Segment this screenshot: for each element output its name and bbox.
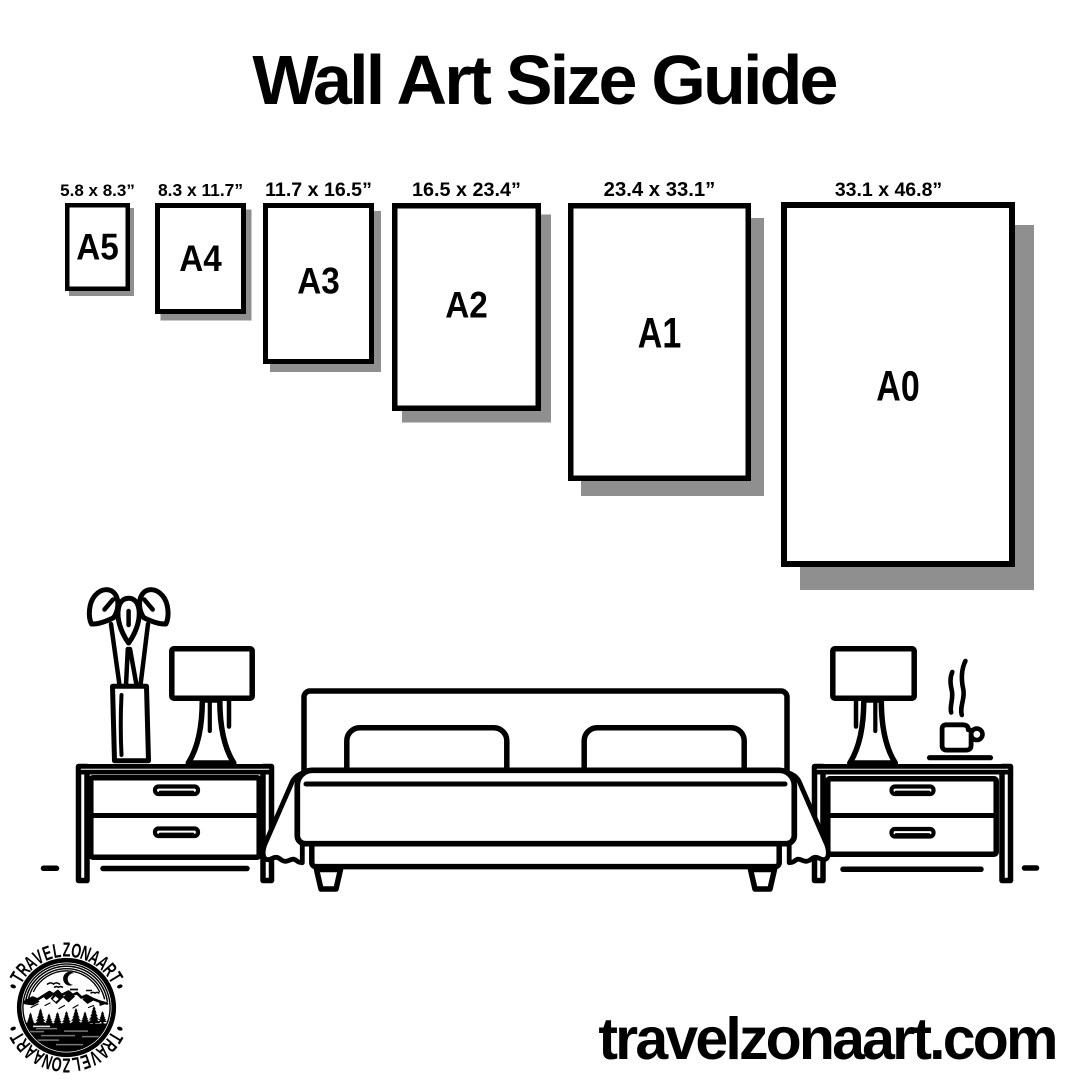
svg-text:travelzonaart.com: travelzonaart.com bbox=[598, 1006, 1055, 1072]
svg-text:A3: A3 bbox=[297, 261, 340, 302]
svg-text:A5: A5 bbox=[76, 227, 119, 268]
svg-text:Wall Art Size Guide: Wall Art Size Guide bbox=[252, 41, 836, 119]
svg-text:Z: Z bbox=[63, 939, 71, 962]
svg-text:33.1 x 46.8”: 33.1 x 46.8” bbox=[835, 179, 942, 201]
svg-text:23.4 x 33.1”: 23.4 x 33.1” bbox=[604, 179, 716, 201]
svg-text:16.5 x 23.4”: 16.5 x 23.4” bbox=[412, 179, 521, 201]
svg-text:A2: A2 bbox=[445, 285, 488, 326]
svg-text:A0: A0 bbox=[876, 363, 919, 410]
svg-text:A1: A1 bbox=[638, 310, 681, 357]
svg-text:11.7 x 16.5”: 11.7 x 16.5” bbox=[265, 179, 372, 201]
svg-text:Z: Z bbox=[63, 1054, 71, 1077]
svg-text:5.8 x 8.3”: 5.8 x 8.3” bbox=[60, 181, 135, 200]
svg-text:8.3 x 11.7”: 8.3 x 11.7” bbox=[158, 180, 243, 200]
svg-text:A4: A4 bbox=[179, 239, 222, 280]
